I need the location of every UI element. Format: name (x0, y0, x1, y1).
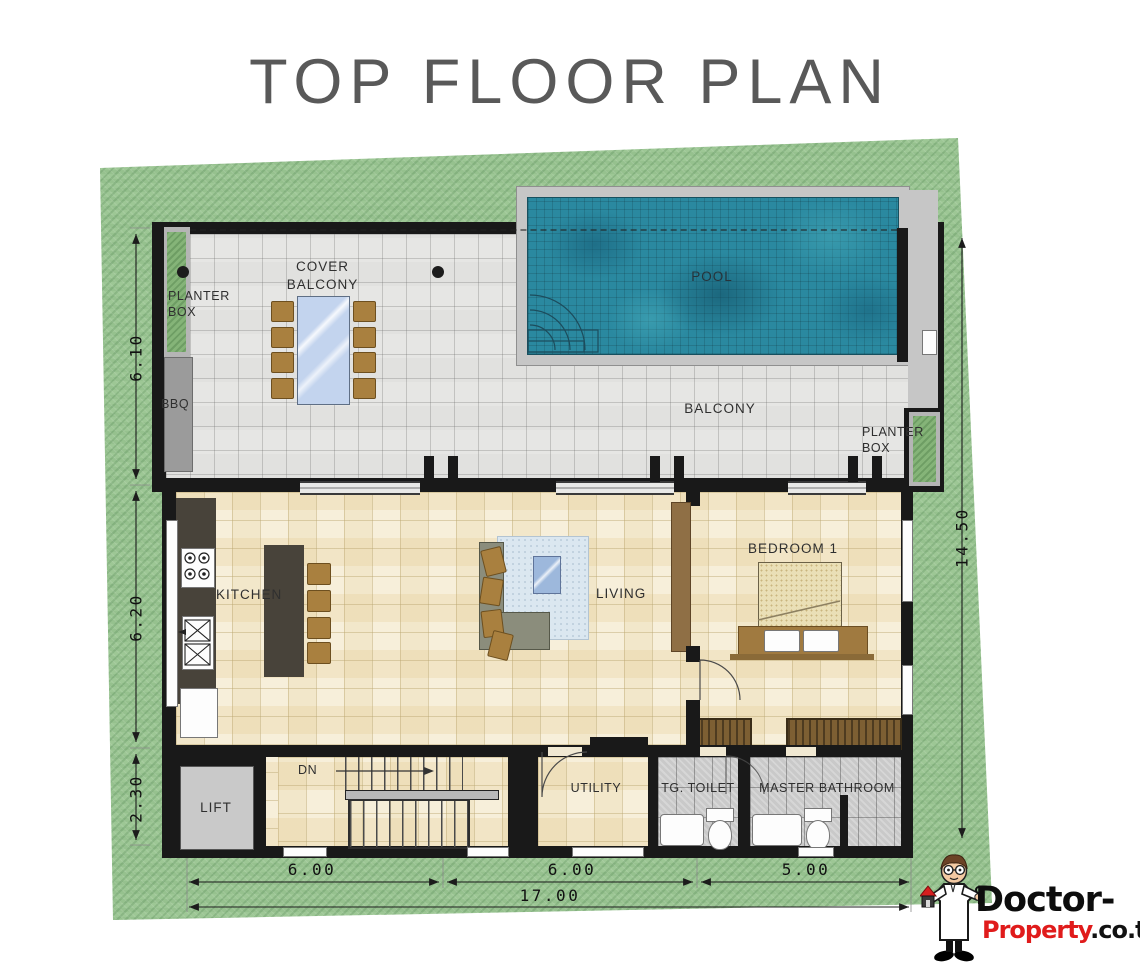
sliding-door (788, 481, 866, 495)
dining-chair (353, 352, 376, 373)
door-jamb (424, 456, 434, 482)
utility-label: UTILITY (556, 780, 636, 796)
dining-chair (271, 378, 294, 399)
window (467, 847, 509, 857)
door-jamb (650, 456, 660, 482)
house-icon (920, 886, 936, 896)
lift-label: LIFT (182, 799, 250, 817)
dim-bottom-total: 17.00 (502, 886, 598, 905)
toilet-bowl (806, 820, 830, 850)
dining-chair (271, 352, 294, 373)
partition-wall (686, 700, 700, 750)
dining-chair (353, 378, 376, 399)
fridge (180, 688, 218, 738)
column-dot (432, 266, 444, 278)
corridor-wall (590, 737, 648, 749)
roof-overhang-line (190, 229, 897, 231)
pool-side-wall (897, 228, 908, 362)
bed-shelf (730, 654, 874, 660)
tg-toilet-label: TG. TOILET (645, 780, 751, 796)
bed (758, 562, 842, 632)
bedroom-1-label: BEDROOM 1 (748, 540, 863, 558)
door-jamb (848, 456, 858, 482)
stairs-down-label: DN (298, 762, 338, 778)
sliding-door (300, 481, 420, 495)
planter-box-left-label: PLANTER BOX (168, 288, 248, 321)
planter-box-right-label: PLANTER BOX (862, 424, 948, 457)
master-bathroom-label: MASTER BATHROOM (748, 780, 906, 796)
stair-upper-flight (345, 757, 463, 790)
dining-chair (353, 301, 376, 322)
toilet-bowl (708, 820, 732, 850)
pool-equipment (922, 330, 937, 355)
window (572, 847, 644, 857)
pool-side-deck (908, 190, 938, 414)
door-opening (786, 747, 816, 756)
door-opening (700, 747, 726, 756)
sliding-door (556, 481, 674, 495)
dim-left-bottom: 2.30 (127, 754, 146, 844)
pillow (803, 630, 839, 652)
kitchen-window (166, 520, 178, 707)
bar-stool (307, 617, 331, 639)
brand-name-primary: Doctor- (975, 880, 1114, 920)
window (283, 847, 327, 857)
bar-stool (307, 642, 331, 664)
dim-left-top: 6.10 (127, 313, 146, 403)
column-dot (177, 266, 189, 278)
bedroom-window (902, 665, 913, 715)
sofa-cushion (479, 577, 504, 607)
sink (660, 814, 704, 846)
bbq-counter (164, 357, 193, 472)
pillow (764, 630, 800, 652)
dim-right-side: 14.50 (953, 493, 972, 583)
brand-domain: .co.th (1090, 916, 1140, 944)
kitchen-label: KITCHEN (216, 586, 311, 604)
shower-partition (840, 795, 848, 848)
bbq-label: BBQ (161, 396, 205, 412)
bar-stool (307, 563, 331, 585)
toilet-wall (648, 748, 658, 858)
page-title: TOP FLOOR PLAN (0, 46, 1140, 118)
dining-chair (271, 301, 294, 322)
stove (181, 548, 215, 588)
window (798, 847, 834, 857)
cover-balcony-label: COVER BALCONY (250, 258, 395, 293)
door-opening (548, 747, 582, 756)
kitchen-island (264, 545, 304, 677)
dim-bottom-middle: 6.00 (532, 860, 612, 879)
partition-wall (686, 646, 700, 662)
dim-bottom-right: 5.00 (766, 860, 846, 879)
bedroom-window (902, 520, 913, 602)
coffee-table (533, 556, 561, 594)
sink (752, 814, 802, 846)
brand-property: Property (982, 916, 1090, 944)
kitchen-sink (182, 616, 214, 670)
utility-room-floor (538, 757, 648, 846)
dim-bottom-left: 6.00 (272, 860, 352, 879)
door-jamb (872, 456, 882, 482)
living-label: LIVING (596, 585, 686, 603)
pool-label: POOL (662, 268, 762, 286)
dining-chair (353, 327, 376, 348)
stair-lower-flight (348, 799, 470, 849)
kitchen-counter (176, 498, 216, 704)
door-jamb (448, 456, 458, 482)
toilet-wall (738, 748, 750, 858)
tv-wardrobe-panel (671, 502, 691, 652)
dining-chair (271, 327, 294, 348)
balcony-label: BALCONY (660, 400, 780, 418)
dim-left-middle: 6.20 (127, 573, 146, 663)
stair-wall (508, 748, 538, 858)
floor-plan-page: TOP FLOOR PLAN (0, 0, 1140, 966)
dining-table (297, 296, 350, 405)
door-jamb (674, 456, 684, 482)
brand-name-secondary: Property.co.th (982, 916, 1140, 944)
